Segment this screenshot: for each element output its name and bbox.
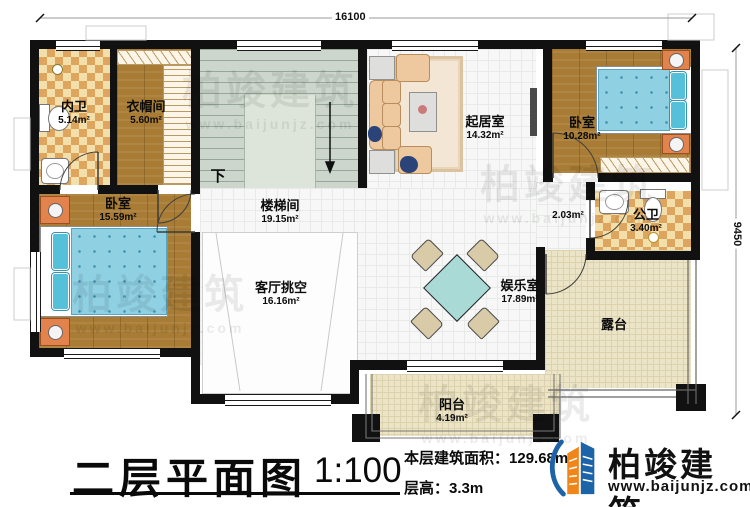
floor-plan-page: 16100 9450 内卫 5.14m² 衣帽间 5.60m² 卧室 15.59… bbox=[0, 0, 750, 507]
pillow bbox=[670, 72, 686, 100]
sink-basin bbox=[46, 163, 64, 179]
room-label-bedroom-right: 卧室 10.28m² bbox=[548, 116, 616, 142]
window bbox=[586, 40, 662, 51]
wall bbox=[30, 185, 60, 194]
wall bbox=[191, 394, 225, 404]
room-label-balcony: 阳台 4.19m² bbox=[420, 398, 484, 424]
room-label-cloakroom: 衣帽间 5.60m² bbox=[112, 100, 180, 126]
plan-scale: 1:100 bbox=[314, 451, 402, 491]
tv-cabinet bbox=[530, 88, 537, 136]
wall bbox=[691, 40, 700, 260]
wall bbox=[191, 49, 200, 194]
wall bbox=[503, 360, 545, 370]
room-label-hallway: 2.03m² bbox=[542, 210, 594, 221]
sink bbox=[41, 158, 69, 184]
double-height-void bbox=[202, 232, 358, 394]
shower-head bbox=[52, 64, 63, 75]
room-label-game-room: 娱乐室 17.89m² bbox=[484, 279, 556, 305]
wall bbox=[358, 49, 367, 188]
window bbox=[56, 40, 100, 51]
brand-name: 柏竣建筑 bbox=[608, 438, 750, 507]
column bbox=[676, 384, 706, 411]
closet-bedroom-right bbox=[600, 157, 690, 173]
nightstand bbox=[662, 50, 690, 70]
armchair bbox=[396, 54, 430, 82]
wardrobe-top bbox=[117, 50, 192, 65]
wall bbox=[331, 394, 359, 404]
flowers bbox=[418, 105, 427, 114]
pillow bbox=[52, 233, 69, 270]
nightstand bbox=[40, 196, 70, 224]
wall bbox=[598, 173, 691, 182]
wall bbox=[586, 251, 700, 260]
nightstand bbox=[662, 134, 690, 154]
mattress bbox=[71, 228, 167, 315]
balcony-window bbox=[407, 360, 503, 372]
pillow bbox=[52, 273, 69, 310]
stair-treads-top bbox=[244, 49, 314, 95]
window bbox=[30, 252, 41, 332]
nightstand bbox=[40, 318, 70, 346]
window bbox=[392, 40, 478, 51]
room-label-terrace: 露台 bbox=[586, 318, 642, 333]
window bbox=[237, 40, 321, 51]
column bbox=[352, 414, 380, 442]
stair-down-label: 下 bbox=[206, 168, 230, 186]
pillow bbox=[670, 101, 686, 129]
brand-website: www.baijunjz.com bbox=[608, 478, 750, 495]
room-label-public-bath: 公卫 3.40m² bbox=[614, 208, 678, 234]
window bbox=[64, 348, 160, 359]
dimension-height: 9450 bbox=[731, 219, 743, 249]
plant bbox=[368, 126, 382, 142]
coffee-table bbox=[409, 92, 437, 132]
plant bbox=[400, 156, 418, 173]
side-table bbox=[369, 56, 395, 80]
dimension-width: 16100 bbox=[332, 11, 369, 23]
room-label-void: 客厅挑空 16.16m² bbox=[236, 281, 326, 307]
sofa-seat bbox=[382, 80, 401, 104]
stair-landing bbox=[244, 95, 316, 188]
wall bbox=[536, 247, 545, 364]
room-label-staircase: 楼梯间 19.15m² bbox=[242, 199, 318, 225]
wall bbox=[543, 173, 553, 182]
side-table bbox=[369, 150, 395, 174]
page-title: 二层平面图 bbox=[72, 445, 307, 506]
void-window bbox=[225, 394, 331, 406]
brand-logo-icon bbox=[546, 432, 604, 502]
wall bbox=[191, 232, 200, 404]
room-label-inner-bath: 内卫 5.14m² bbox=[42, 100, 106, 126]
wall bbox=[98, 185, 158, 194]
room-label-bedroom-left: 卧室 15.59m² bbox=[84, 197, 152, 223]
double-bed-left bbox=[40, 226, 168, 317]
sofa-seat bbox=[382, 103, 401, 127]
room-label-living: 起居室 14.32m² bbox=[450, 115, 520, 141]
floor-height-text: 层高：3.3m bbox=[404, 477, 483, 498]
title-underline bbox=[70, 492, 400, 495]
wall bbox=[352, 360, 407, 370]
stair-treads-right bbox=[314, 49, 358, 188]
wall bbox=[586, 182, 595, 200]
